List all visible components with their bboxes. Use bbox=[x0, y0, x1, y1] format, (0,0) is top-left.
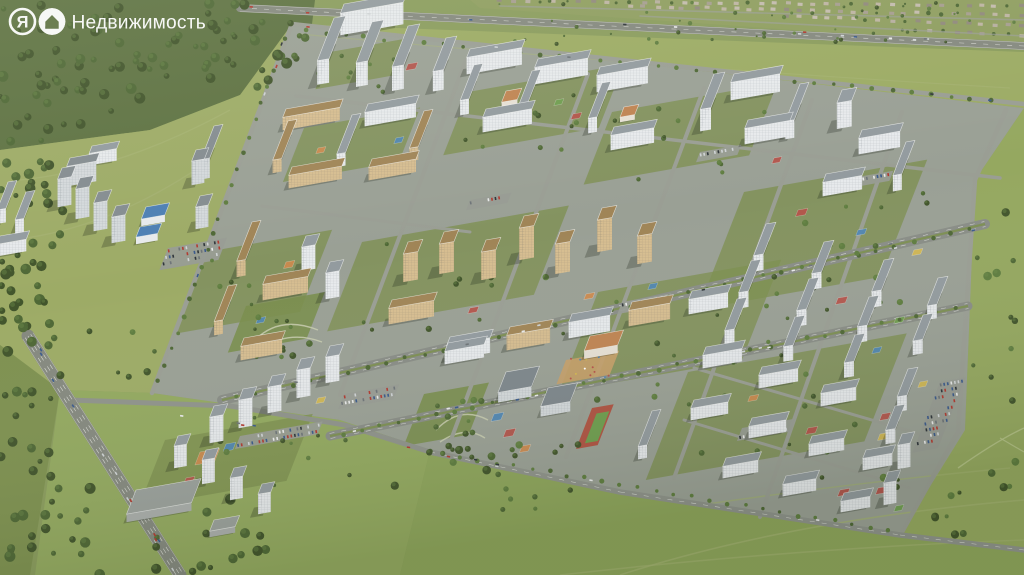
house-icon bbox=[39, 8, 66, 35]
brand-name: Недвижимость bbox=[72, 12, 206, 33]
atmosphere-overlay bbox=[0, 0, 1024, 575]
masterplan-scene: Я Недвижимость bbox=[0, 0, 1024, 575]
yandex-logo-letter: Я bbox=[17, 13, 29, 31]
aerial-masterplan-render: Я Недвижимость bbox=[0, 0, 1024, 575]
